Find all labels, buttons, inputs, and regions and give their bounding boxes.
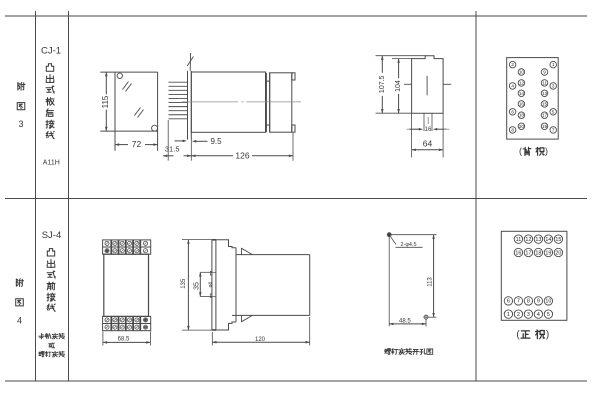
svg-text:19: 19 [545, 250, 551, 256]
svg-text:16: 16 [515, 250, 521, 256]
svg-text:1: 1 [552, 62, 555, 67]
svg-text:9: 9 [537, 299, 540, 305]
svg-text:35: 35 [193, 282, 200, 290]
svg-text:CJ-1: CJ-1 [41, 46, 61, 57]
svg-text:6: 6 [511, 109, 514, 114]
svg-text:11: 11 [542, 80, 547, 85]
svg-text:A11H: A11H [43, 160, 60, 167]
svg-text:3: 3 [18, 119, 23, 129]
svg-text:18: 18 [519, 113, 525, 118]
svg-text:17: 17 [542, 113, 548, 118]
svg-text:4: 4 [511, 83, 514, 88]
svg-text:3: 3 [552, 83, 555, 88]
svg-text:113: 113 [428, 277, 434, 287]
svg-text:48.5: 48.5 [399, 318, 411, 324]
svg-text:7: 7 [517, 299, 520, 305]
svg-text:15: 15 [555, 237, 561, 243]
svg-text:64: 64 [423, 138, 433, 148]
svg-text:16: 16 [519, 101, 525, 106]
svg-text:1: 1 [507, 312, 510, 318]
svg-text:13: 13 [535, 237, 541, 243]
svg-text:4: 4 [17, 315, 22, 325]
svg-text:126: 126 [235, 150, 249, 160]
svg-text:φ8: φ8 [207, 281, 212, 287]
svg-text:10: 10 [519, 70, 525, 75]
svg-text:17: 17 [525, 250, 531, 256]
svg-text:12: 12 [519, 80, 525, 85]
svg-text:8: 8 [527, 299, 530, 305]
svg-text:10: 10 [545, 299, 551, 305]
svg-text:6: 6 [507, 299, 510, 305]
svg-text:11: 11 [516, 237, 522, 243]
svg-text:16: 16 [425, 127, 432, 133]
svg-text:2: 2 [511, 62, 514, 67]
svg-text:12: 12 [525, 237, 531, 243]
svg-text:): ) [545, 146, 548, 156]
svg-text:SJ-4: SJ-4 [42, 230, 62, 241]
svg-text:7: 7 [552, 127, 555, 132]
svg-text:120: 120 [255, 337, 266, 343]
svg-text:8: 8 [511, 127, 514, 132]
svg-text:13: 13 [542, 91, 548, 96]
svg-text:19: 19 [542, 124, 548, 129]
svg-text:72: 72 [132, 139, 142, 149]
svg-text:5: 5 [547, 312, 550, 318]
svg-text:107.5: 107.5 [379, 75, 386, 93]
svg-text:3: 3 [527, 312, 530, 318]
svg-text:2-φ4.5: 2-φ4.5 [400, 242, 416, 248]
svg-text:9.5: 9.5 [210, 137, 222, 146]
svg-text:31.5: 31.5 [165, 145, 180, 154]
svg-text:18: 18 [535, 250, 541, 256]
svg-text:2: 2 [517, 312, 520, 318]
svg-text:20: 20 [519, 124, 525, 129]
svg-text:4: 4 [537, 312, 540, 318]
svg-text:): ) [546, 330, 549, 341]
svg-text:15: 15 [542, 101, 548, 106]
svg-text:68.5: 68.5 [118, 337, 130, 343]
svg-text:9: 9 [543, 70, 546, 75]
svg-text:5: 5 [552, 109, 555, 114]
svg-text:14: 14 [519, 91, 525, 96]
svg-text:135: 135 [181, 278, 187, 289]
svg-text:20: 20 [555, 250, 561, 256]
svg-text:104: 104 [395, 80, 402, 92]
svg-text:(: ( [519, 146, 522, 156]
svg-text:115: 115 [101, 95, 110, 108]
svg-text:14: 14 [545, 237, 551, 243]
